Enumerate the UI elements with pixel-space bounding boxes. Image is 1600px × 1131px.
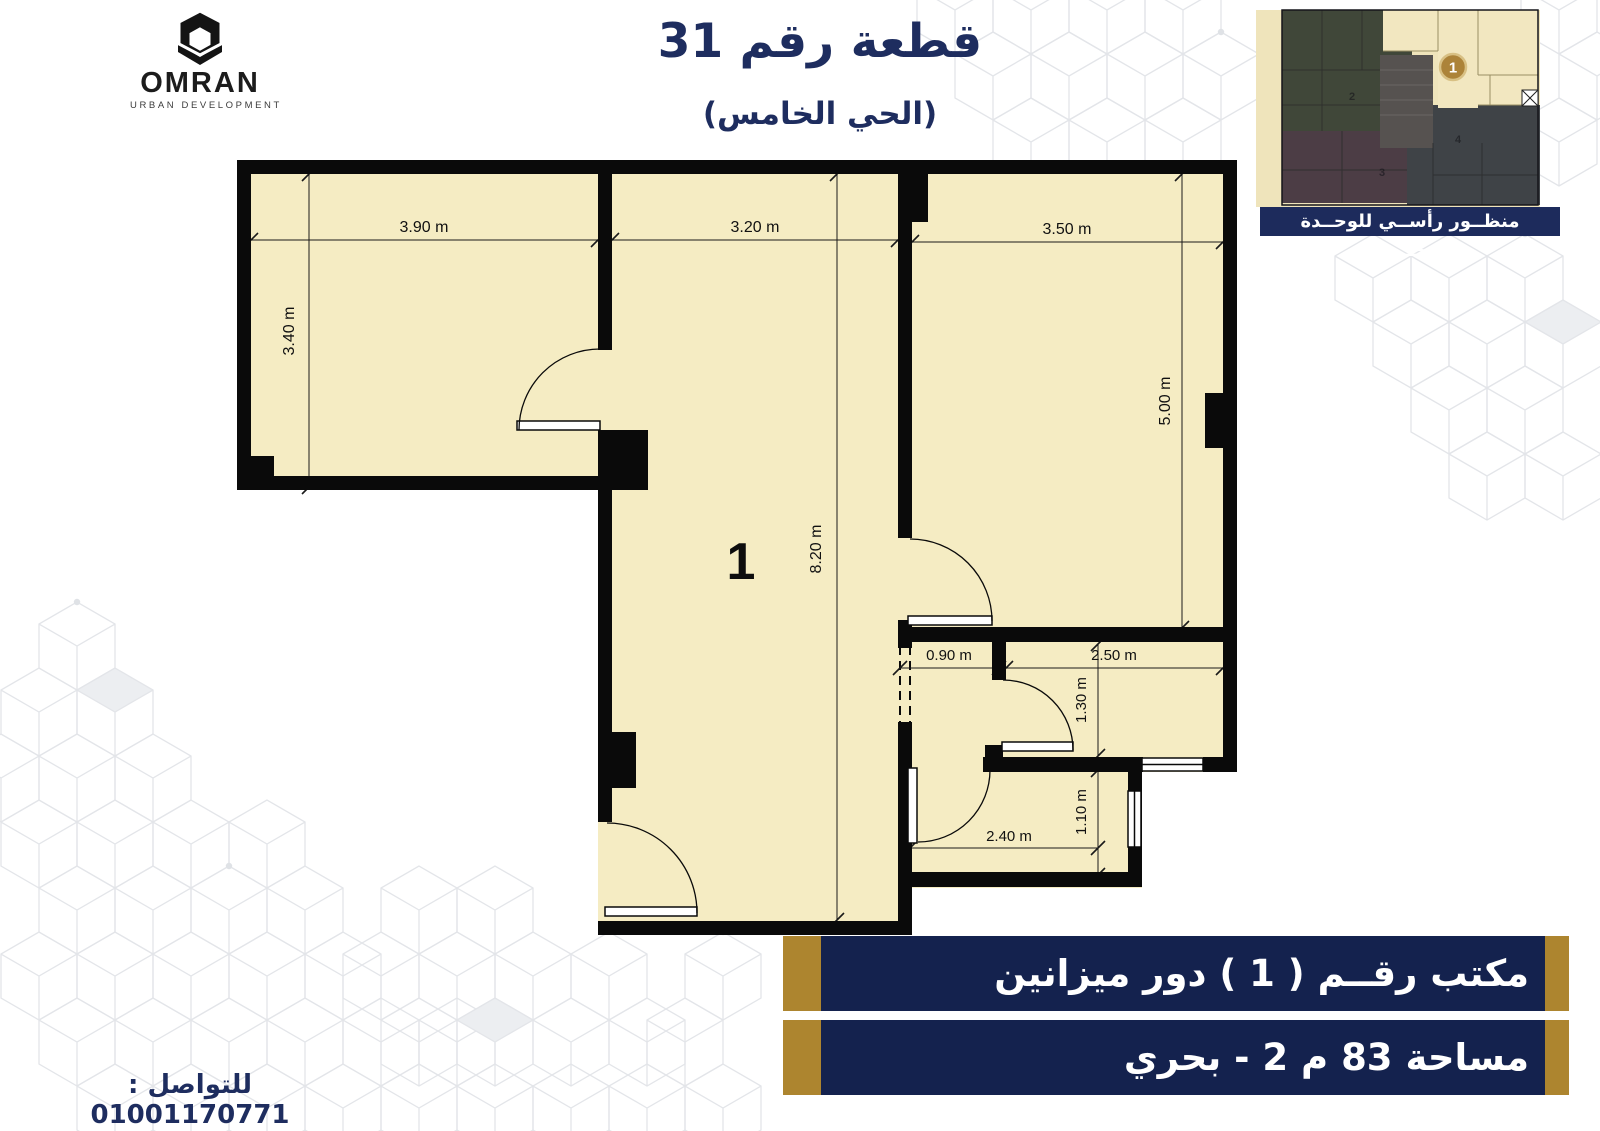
elevator-icon [1522,90,1538,106]
dim-label-hall-height: 8.20 m [808,525,825,574]
page-subtitle: (الحي الخامس) [580,96,1060,132]
omran-hexagon-icon [170,8,230,66]
dim-label-hall-width: 3.20 m [731,219,780,236]
gold-accent [1545,1020,1569,1095]
dim-label-left-room-width: 3.90 m [400,219,449,236]
unit-1-badge: 1 [1440,54,1466,80]
page-title: قطعة رقم 31 [580,14,1060,69]
dim-label-bath-height: 1.30 m [1073,677,1090,723]
gold-accent [783,1020,821,1095]
dim-label-kitchen-height: 1.10 m [1073,789,1090,835]
contact-info: للتواصل : 01001170771 [50,1070,330,1130]
unit-locator-map: 2 3 4 1 [1256,10,1540,207]
info-bar-area-text: مساحة 83 م 2 - بحري [821,1020,1545,1095]
info-bar-unit-text: مكتب رقــم ( 1 ) دور ميزانين [821,936,1545,1011]
dim-label-right-room-width: 3.50 m [1043,221,1092,238]
brand-logo: OMRAN URBAN DEVELOPMENT [130,8,270,111]
gold-accent [1545,936,1569,1011]
info-bar-unit: مكتب رقــم ( 1 ) دور ميزانين [783,936,1569,1011]
svg-text:1: 1 [1449,60,1457,77]
room-number-label: 1 [727,533,756,591]
minimap-unit2-label: 2 [1349,91,1355,103]
dim-label-left-room-height: 3.40 m [281,307,298,356]
dim-label-corridor-width: 0.90 m [926,647,972,664]
dim-label-right-room-height: 5.00 m [1157,377,1174,426]
minimap-caption: منظــور رأســي للوحــدة المحـــددة [1260,207,1560,236]
minimap-unit3-label: 3 [1379,167,1385,179]
info-bar-area: مساحة 83 م 2 - بحري [783,1020,1569,1095]
minimap-unit4-label: 4 [1455,134,1462,146]
gold-accent [783,936,821,1011]
dim-label-kitchen-width: 2.40 m [986,828,1032,845]
brand-tagline: URBAN DEVELOPMENT [130,100,270,111]
flyer-page: 3.90 m 3.40 m 3.20 m 3.50 m 5.00 m 8.20 … [0,0,1600,1131]
brand-name: OMRAN [130,68,270,98]
dim-label-bath-width: 2.50 m [1091,647,1137,664]
